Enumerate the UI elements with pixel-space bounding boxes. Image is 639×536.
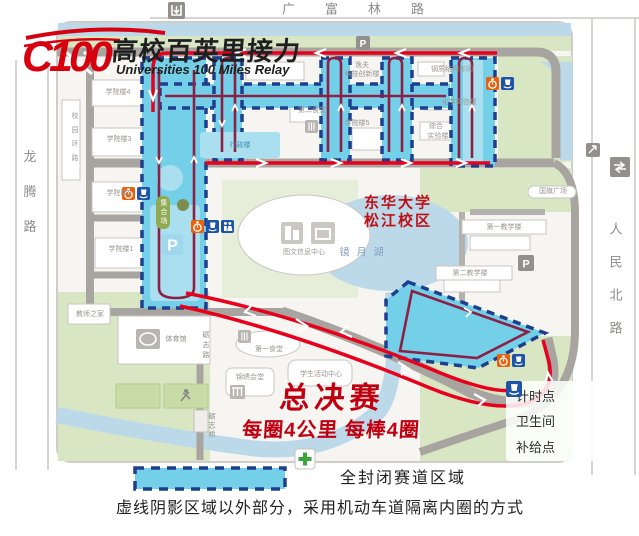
- zone-strip-3: [382, 58, 412, 160]
- bldg-student-center: 学生活动中心: [300, 371, 342, 379]
- bldg-canteen2: 第二食堂: [298, 107, 326, 115]
- parking-icon-zone: P: [162, 234, 183, 255]
- road-label-left: 龙腾路: [21, 150, 36, 255]
- lake-label: 镜月湖: [340, 247, 391, 259]
- bldg-admin: 行政楼: [230, 142, 251, 150]
- assembly-area-pill: 集合场: [156, 196, 170, 229]
- legend-panel: 计时点 卫生间 补给点: [506, 381, 598, 461]
- legend-row-restroom: 卫生间: [506, 411, 598, 430]
- bldg-xueyuan5: 学院楼5: [345, 120, 370, 128]
- medical-icon: [295, 449, 315, 469]
- legend-row-supply: 补给点: [506, 437, 598, 456]
- bldg-zonghe-1: 综合: [429, 123, 443, 131]
- road-label-ring: 校园环路: [70, 112, 78, 168]
- road-label-top: 广富林路: [282, 3, 454, 18]
- bldg-library: 图文信息中心: [283, 249, 325, 257]
- gate-small-icon: [586, 143, 600, 157]
- bldg-canteen1: 第一食堂: [255, 346, 283, 354]
- hall-icon: [230, 385, 245, 399]
- bldg-gym: 体育馆: [166, 336, 187, 344]
- bldg-zonghe-2: 实验楼: [428, 133, 449, 141]
- svg-text:P: P: [360, 39, 367, 50]
- event-logo-subtitle: Universities 100 Miles Relay: [116, 62, 289, 77]
- bldg-chem-lab: 化学实验楼: [442, 99, 477, 107]
- campus-race-map: P P P: [0, 0, 639, 536]
- legend-label-supply: 补给点: [516, 437, 555, 456]
- bldg-teachers-home: 教师之家: [76, 311, 104, 319]
- bldg-jinxiu-hall: 锦绣会堂: [236, 374, 264, 382]
- north-gate-icon: [168, 2, 185, 19]
- bldg-xueyuan4: 学院楼4: [106, 89, 131, 97]
- canteen2-fork-icon: [305, 120, 318, 133]
- svg-text:P: P: [522, 259, 529, 271]
- east-gate-icon: [610, 157, 630, 177]
- canteen1-fork-icon: [238, 330, 251, 343]
- svg-text:P: P: [167, 238, 178, 255]
- bldg-yifu-2: 科技创新楼: [345, 71, 380, 79]
- bldg-xueyuan1: 学院楼1: [109, 246, 134, 254]
- finals-title: 总决赛: [278, 382, 385, 417]
- flag-square-label: 国旗广场: [539, 188, 567, 196]
- bldg-teach1: 第一教学楼: [487, 224, 522, 232]
- supply-icon: [506, 381, 522, 397]
- bldg-xueyuan2: 学院楼2: [107, 190, 132, 198]
- bridge-label-lizhi: 砺志桥: [207, 413, 215, 440]
- bldg-yifu-1: 逸夫: [355, 62, 369, 70]
- marker-dot: [177, 199, 189, 211]
- campus-name-line1: 东华大学: [364, 194, 432, 211]
- closed-area-swatch: [135, 468, 285, 489]
- road-label-lizhi: 砺志路: [201, 331, 209, 361]
- bldg-teach2: 第二教学楼: [453, 270, 488, 278]
- stadium-icon: [136, 329, 160, 349]
- campus-name-line2: 松江校区: [364, 212, 432, 229]
- parking-icon-top: P: [356, 36, 370, 50]
- bldg-xueyuan3: 学院楼3: [107, 136, 132, 144]
- legend-label-restroom: 卫生间: [516, 411, 555, 430]
- lap-info: 每圈4公里 每棒4圈: [241, 420, 420, 443]
- isolation-note: 虚线阴影区域以外部分，采用机动车道隔离内圈的方式: [116, 500, 524, 518]
- checkpoint-cluster-center: [191, 220, 234, 233]
- event-logo-mark: C100: [22, 33, 109, 82]
- lizhi-bridge: [194, 410, 208, 432]
- parking-icon-east: P: [518, 255, 534, 271]
- bldg-steel-workshop: 钢质结构车间: [431, 66, 473, 74]
- closed-area-label: 全封闭赛道区域: [340, 470, 466, 488]
- road-label-right: 人民北路: [607, 222, 622, 354]
